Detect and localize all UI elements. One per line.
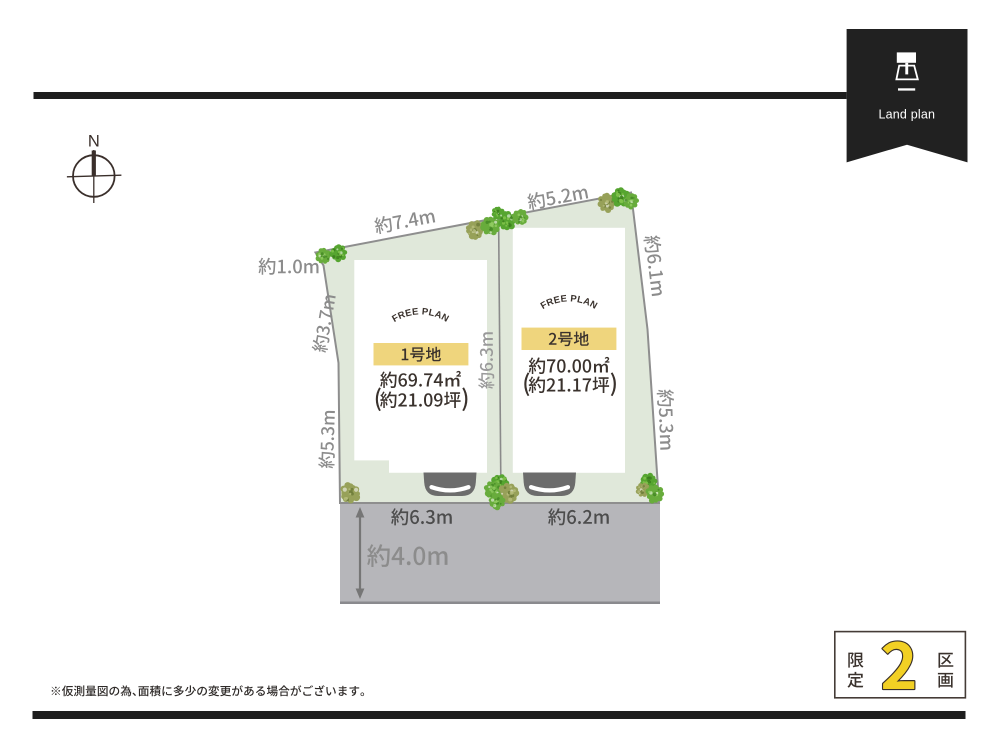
svg-text:N: N: [88, 133, 100, 151]
svg-text:Land plan: Land plan: [878, 108, 935, 122]
